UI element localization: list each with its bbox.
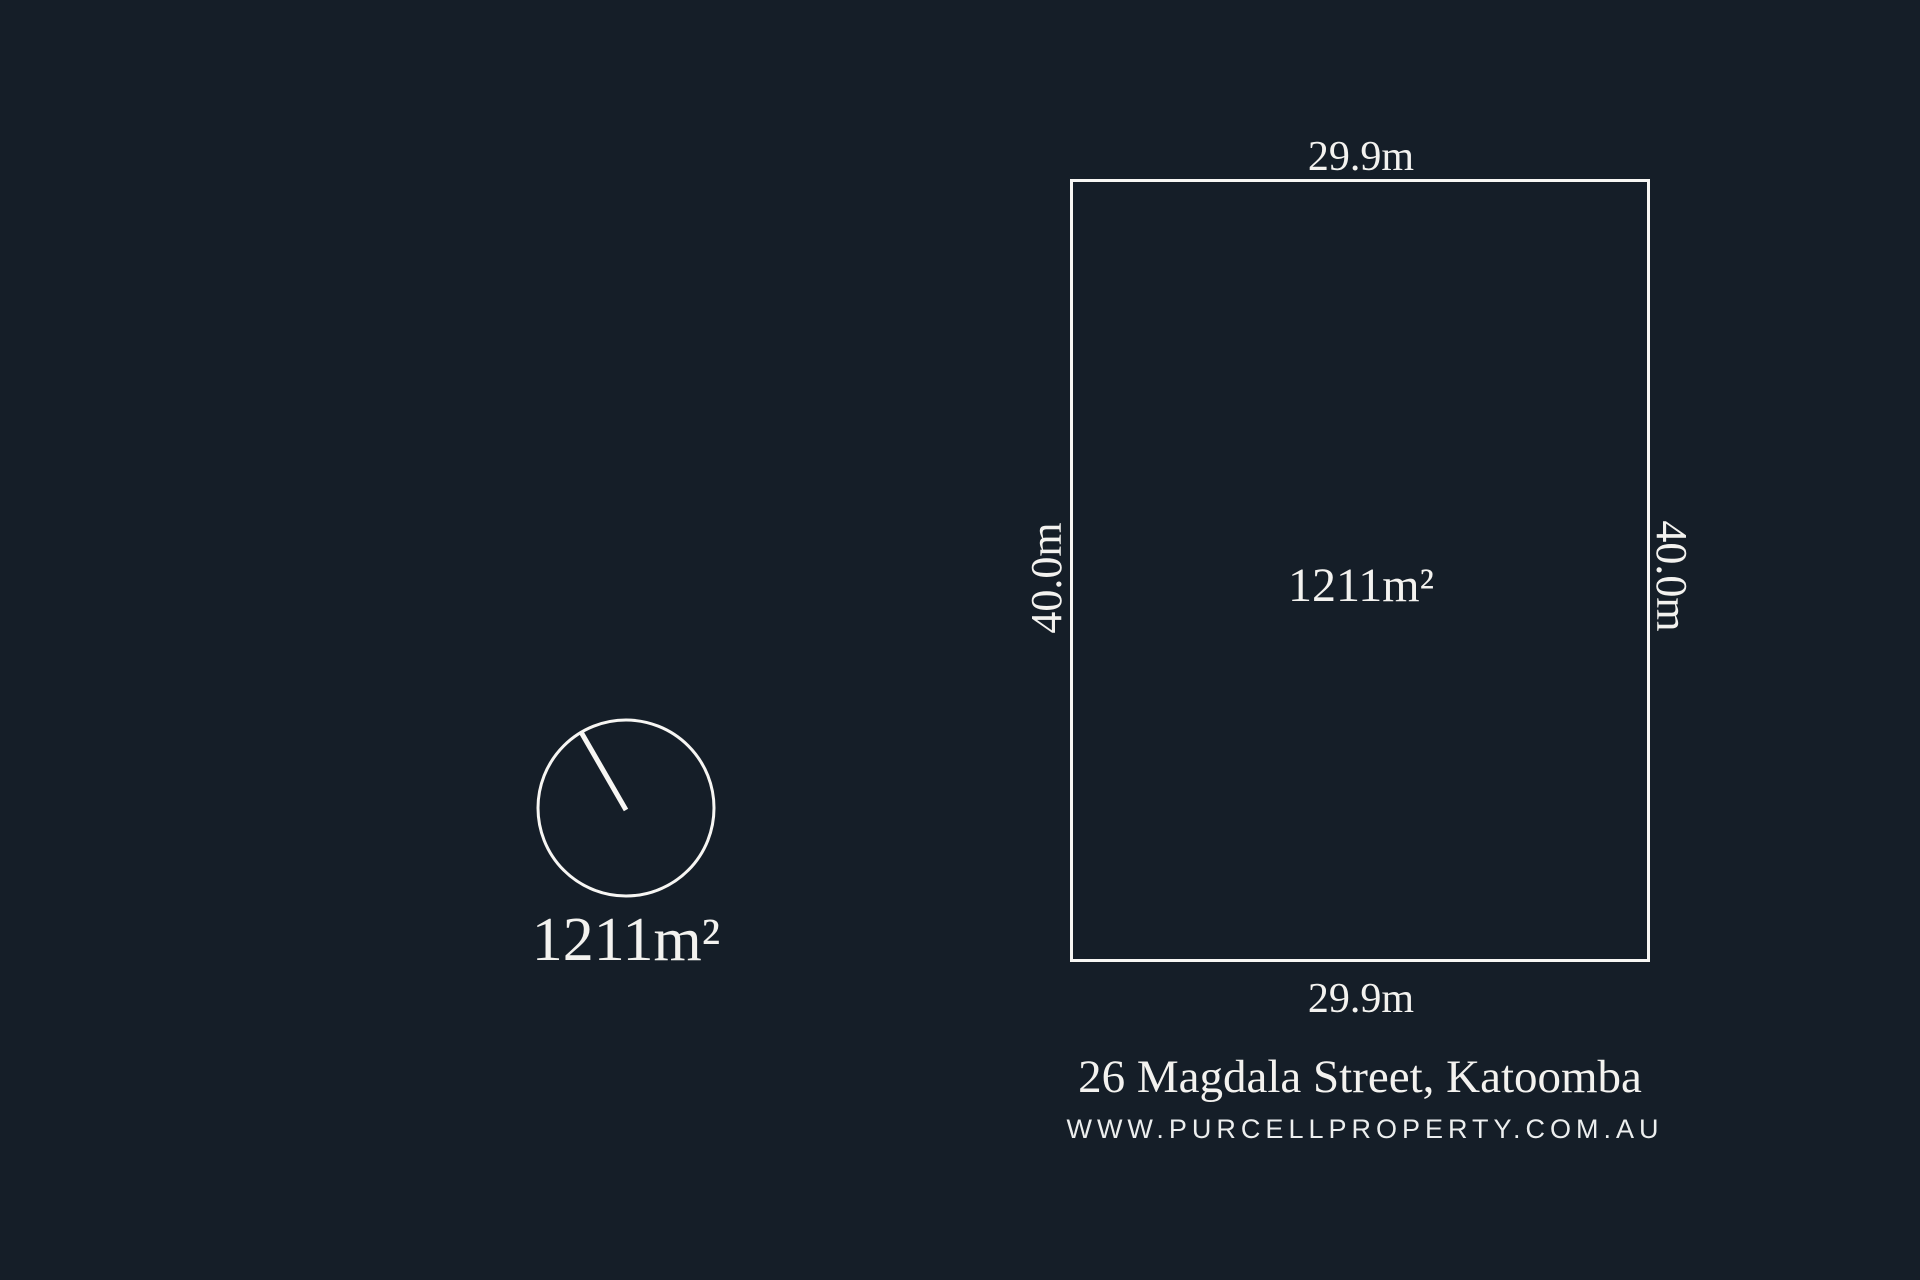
lot-plan-canvas: 29.9m 29.9m 40.0m 40.0m 1211m² 1211m² 26… (0, 0, 1920, 1280)
dimension-label-top: 29.9m (1308, 136, 1414, 178)
dimension-label-bottom: 29.9m (1308, 978, 1414, 1020)
dimension-label-right: 40.0m (1649, 520, 1693, 631)
lot-area-label: 1211m² (1288, 562, 1434, 610)
agency-website-url: WWW.PURCELLPROPERTY.COM.AU (1066, 1116, 1663, 1143)
north-indicator-area-label: 1211m² (532, 909, 721, 971)
dimension-label-left: 40.0m (1025, 522, 1069, 633)
property-address: 26 Magdala Street, Katoomba (1078, 1054, 1642, 1101)
north-indicator-needle (581, 732, 626, 810)
